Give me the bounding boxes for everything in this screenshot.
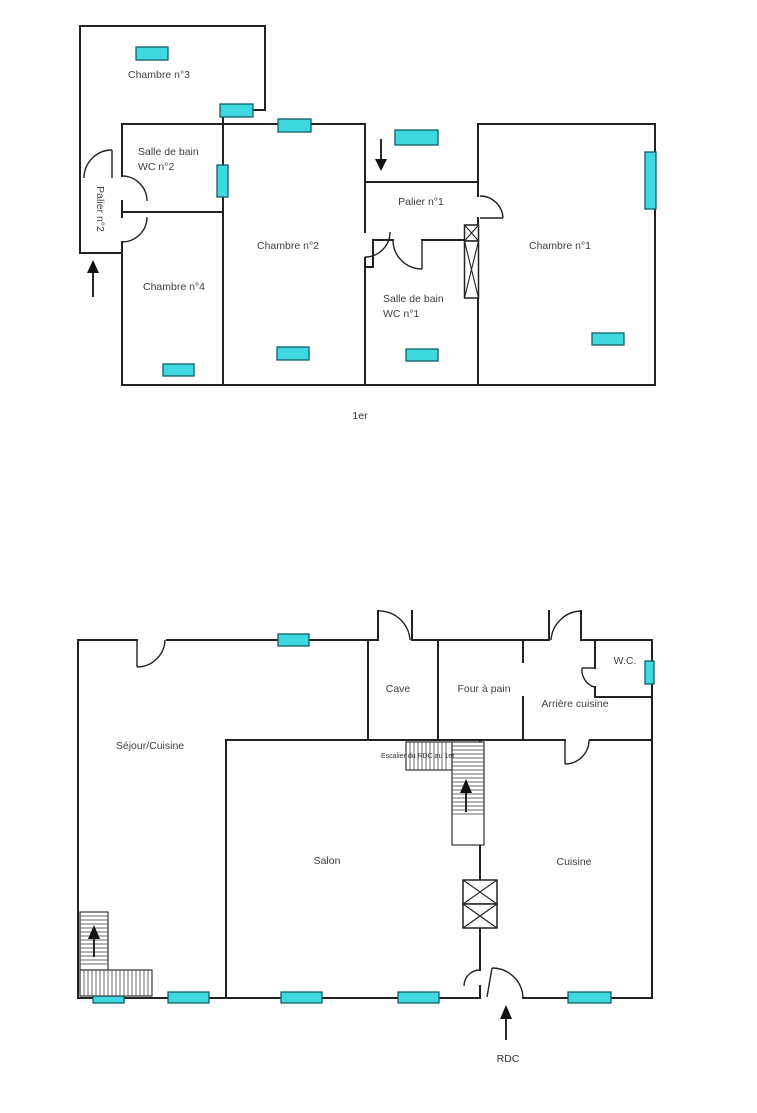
floor-label-1er: 1er [352,409,367,423]
window-marker [398,992,439,1003]
room-label-four-a-pain: Four à pain [457,682,510,696]
wall [378,611,581,640]
door-arc [393,240,422,269]
window-marker [406,349,438,361]
window-marker [163,364,194,376]
window-marker [592,333,624,345]
door-arc [480,196,503,218]
room-label-salle-de-bain-wc-2: Salle de bain WC n°2 [138,145,199,175]
door-arc [551,611,581,640]
floor-rdc-windows [93,634,654,1003]
window-marker [568,992,611,1003]
door-arc [122,217,147,242]
room-label-chambre-3: Chambre n°3 [128,68,190,82]
stair-label-escalier: Escalier du RDC au 1er [381,753,455,761]
window-marker [220,104,253,117]
room-label-salle-de-bain-wc-1: Salle de bain WC n°1 [383,292,444,322]
door-arc [84,150,112,178]
stairs-up-arrow-icon [87,260,99,297]
floor-1er-chimney [465,225,479,298]
window-marker [136,47,168,60]
room-label-chambre-1: Chambre n°1 [529,239,591,253]
floorplan-canvas: Chambre n°3 Salle de bain WC n°2 Palier … [0,0,757,1113]
door-arc [365,232,390,257]
window-marker [278,634,309,646]
room-label-arriere-cuisine: Arrière cuisine [541,697,608,711]
entry-up-arrow-icon [500,1005,512,1040]
room-label-chambre-4: Chambre n°4 [143,280,205,294]
room-label-cave: Cave [386,682,411,696]
door-arc [378,611,410,640]
floorplan-drawing [0,0,757,1113]
room-label-chambre-2: Chambre n°2 [257,239,319,253]
door-arc [582,668,594,687]
door-leaf [487,968,492,997]
stair-flight [452,742,484,845]
floor-rdc-chimney [463,880,497,928]
window-marker [168,992,209,1003]
wall [122,124,655,385]
floor-label-rdc: RDC [497,1052,520,1066]
room-label-sejour-cuisine: Séjour/Cuisine [116,739,184,753]
window-marker [645,661,654,684]
stairs-sejour [80,912,152,996]
window-marker [217,165,228,197]
room-label-wc: W.C. [614,654,637,668]
room-label-cuisine: Cuisine [556,855,591,869]
window-marker [277,347,309,360]
door-arc [122,176,147,201]
room-label-salon: Salon [314,854,341,868]
room-label-palier-1: Palier n°1 [398,195,444,209]
floor-rdc-walls [78,611,652,998]
room-label-palier-2: Palier n°2 [93,186,107,232]
door-arc [137,640,165,667]
door-arc [464,970,480,986]
window-marker [278,119,311,132]
door-arc [492,968,523,997]
entry-down-arrow-icon [375,139,387,171]
floor-rdc-doors [137,611,595,997]
door-arc [565,740,589,764]
window-marker [395,130,438,145]
window-marker [281,992,322,1003]
window-marker [645,152,656,209]
